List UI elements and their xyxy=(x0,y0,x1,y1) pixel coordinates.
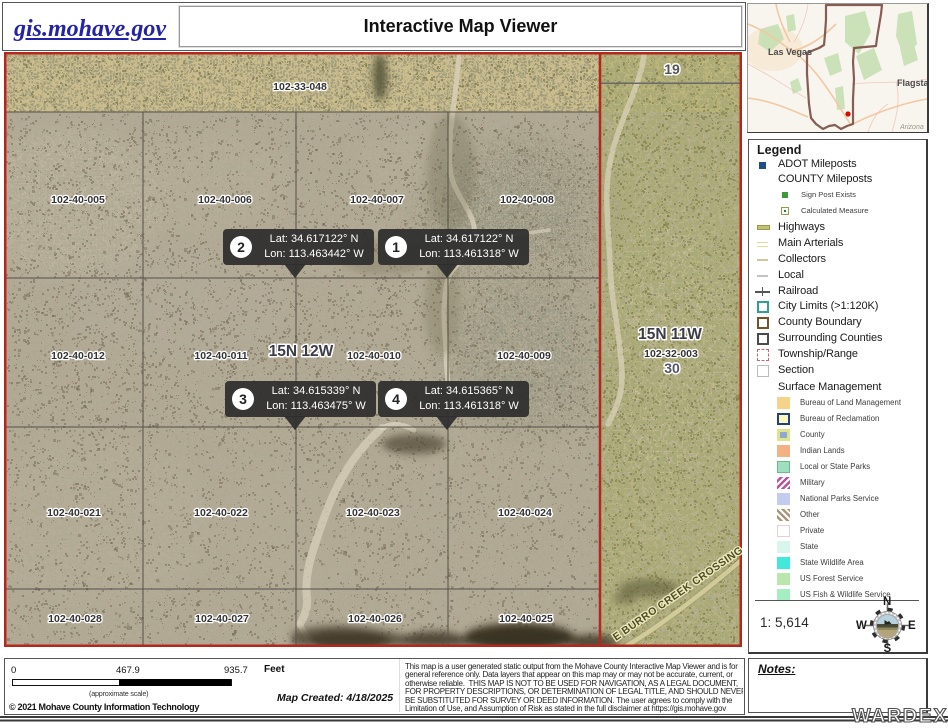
svg-text:102-40-012: 102-40-012 xyxy=(51,350,105,362)
svg-text:102-40-025: 102-40-025 xyxy=(499,613,553,625)
svg-text:102-40-028: 102-40-028 xyxy=(48,613,102,625)
svg-text:102-40-006: 102-40-006 xyxy=(198,194,252,206)
svg-text:102-40-027: 102-40-027 xyxy=(195,613,249,625)
svg-text:30: 30 xyxy=(664,360,680,376)
svg-text:102-40-008: 102-40-008 xyxy=(500,194,554,206)
svg-text:102-33-048: 102-33-048 xyxy=(273,81,327,93)
svg-text:102-40-007: 102-40-007 xyxy=(350,194,404,206)
svg-text:102-40-009: 102-40-009 xyxy=(497,350,551,362)
svg-text:19: 19 xyxy=(664,61,680,77)
svg-text:102-40-023: 102-40-023 xyxy=(346,507,400,519)
svg-text:15N 12W: 15N 12W xyxy=(269,343,334,360)
svg-text:15N 11W: 15N 11W xyxy=(638,326,702,343)
svg-text:102-40-026: 102-40-026 xyxy=(348,613,402,625)
svg-text:102-40-011: 102-40-011 xyxy=(194,350,247,362)
svg-text:Las Vegas: Las Vegas xyxy=(768,47,812,57)
svg-text:102-40-010: 102-40-010 xyxy=(347,350,401,362)
svg-text:102-40-024: 102-40-024 xyxy=(498,507,552,519)
svg-text:Arizona: Arizona xyxy=(899,124,924,131)
svg-text:102-40-005: 102-40-005 xyxy=(51,194,105,206)
svg-text:102-40-021: 102-40-021 xyxy=(47,507,101,519)
svg-text:102-40-022: 102-40-022 xyxy=(194,507,248,519)
svg-text:Flagsta: Flagsta xyxy=(897,78,927,88)
svg-text:102-32-003: 102-32-003 xyxy=(644,348,698,360)
